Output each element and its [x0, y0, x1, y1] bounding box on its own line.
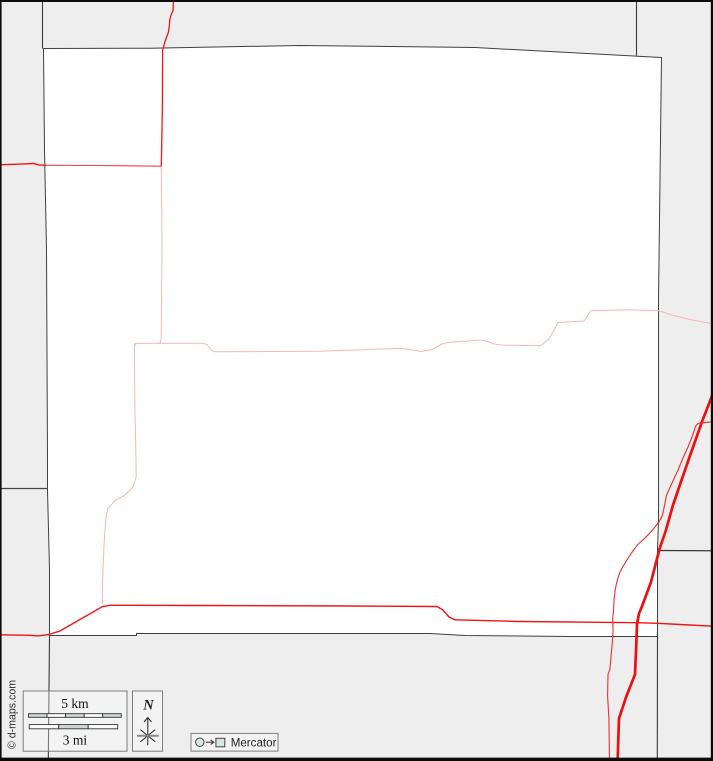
svg-text:3 mi: 3 mi — [63, 733, 88, 748]
svg-text:© d-maps.com: © d-maps.com — [7, 680, 19, 749]
svg-text:5 km: 5 km — [61, 696, 89, 711]
svg-text:N: N — [142, 698, 154, 714]
svg-text:Mercator: Mercator — [231, 736, 277, 749]
